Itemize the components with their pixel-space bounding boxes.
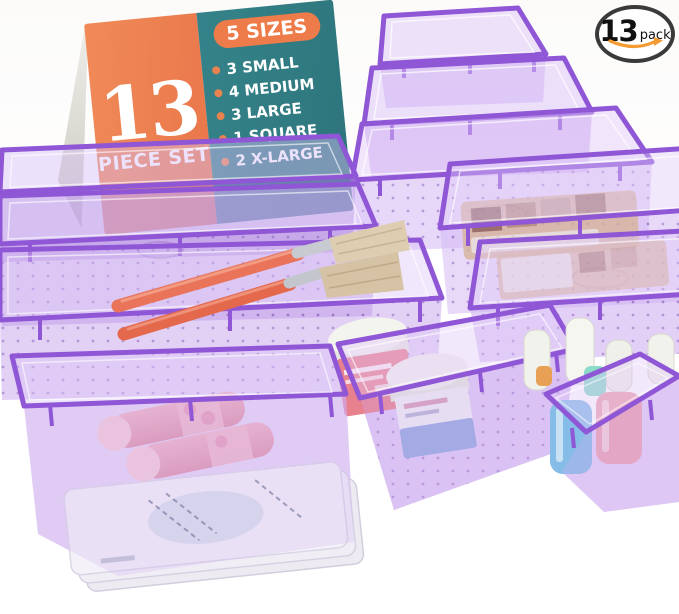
front-trays-scene — [0, 0, 679, 614]
smile-swoosh-icon — [608, 37, 664, 53]
product-photo: 13 PIECE SET 5 SIZES 3 SMALL 4 MEDIUM 3 … — [0, 0, 679, 614]
pack-count-badge: 13 pack — [595, 5, 675, 63]
large-square-tray — [12, 346, 364, 594]
